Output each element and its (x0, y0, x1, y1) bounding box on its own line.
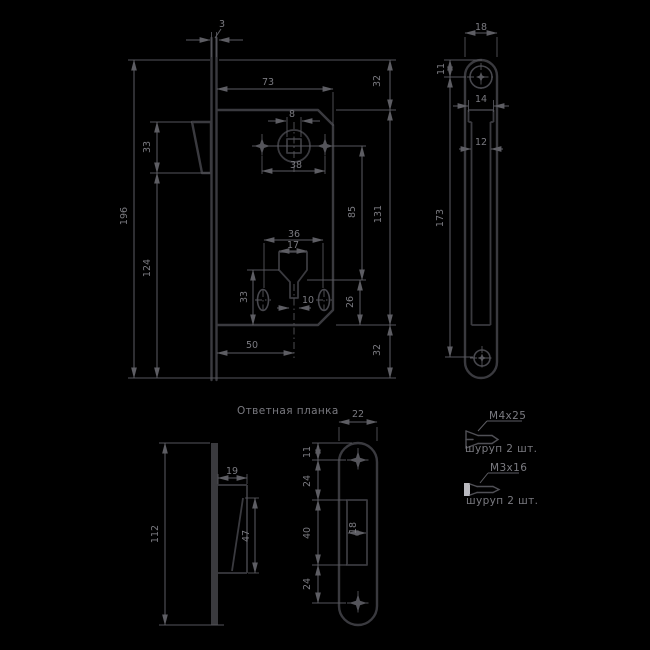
dim-label-screw-spacing: 173 (435, 209, 446, 227)
dim-label-strike-height: 112 (150, 525, 161, 543)
strike-plate-side-view: 112 19 47 (150, 443, 259, 625)
strike-plate-edge (211, 443, 218, 625)
screw2-size-label: M3x16 (490, 462, 527, 474)
strike-plate-title: Ответная планка (237, 405, 339, 417)
dim-label-latch-height: 33 (142, 141, 153, 153)
dim-label-body-side-width: 12 (475, 137, 487, 148)
screw2-qty-label: шуруп 2 шт. (466, 495, 538, 507)
dim-label-strike-slot-width: 18 (348, 522, 359, 534)
technical-drawing-canvas: 3 196 33 124 73 32 8 38 85 131 36 17 33 … (0, 0, 650, 650)
dim-label-strike-top-to-screw: 11 (302, 446, 313, 458)
lock-body-outline (217, 110, 333, 325)
dim-label-faceplate-height: 196 (119, 207, 130, 225)
dim-label-spindle-square: 8 (289, 109, 295, 120)
dim-label-cylinder-to-bottom: 33 (239, 291, 250, 303)
faceplate-side-view: 18 11 14 12 173 (435, 22, 509, 378)
dim-label-backset: 50 (246, 340, 258, 351)
dim-label-faceplate-thickness: 3 (219, 19, 225, 30)
dim-label-strike-screw-to-slot: 24 (302, 475, 313, 487)
screws-legend: M4x25 шуруп 2 шт. M3x16 шуруп 2 шт. (464, 410, 538, 507)
dim-label-slot-width: 10 (302, 295, 314, 306)
cylinder-cutout (279, 252, 307, 298)
screw-m3x16-drawing (464, 473, 519, 496)
dim-label-ovals-to-bottom: 26 (345, 296, 356, 308)
screw1-qty-label: шуруп 2 шт. (465, 443, 537, 455)
dim-label-cylinder-screw-span: 36 (288, 229, 300, 240)
dim-label-body-bottom-offset: 32 (372, 344, 383, 356)
dim-label-hub-to-cylinder: 85 (347, 206, 358, 218)
dim-label-plate-top-to-screw: 11 (436, 63, 447, 75)
lock-front-view: 3 196 33 124 73 32 8 38 85 131 36 17 33 … (119, 19, 396, 380)
dim-label-latch-to-bottom: 124 (142, 259, 153, 277)
screw1-size-label: M4x25 (489, 410, 526, 422)
strike-tongue-box (218, 485, 247, 573)
dim-label-plate-width: 18 (475, 22, 487, 33)
dim-label-cylinder-width: 17 (287, 240, 299, 251)
dim-label-body-width: 73 (262, 77, 274, 88)
dim-label-strike-tongue: 47 (241, 530, 252, 542)
dim-label-body-height: 131 (373, 205, 384, 223)
dim-label-strike-slot-height: 40 (302, 527, 313, 539)
dim-label-body-top-offset: 32 (372, 75, 383, 87)
dim-label-strike-width: 22 (352, 409, 364, 420)
dim-label-handle-screw-span: 38 (290, 160, 302, 171)
dim-label-body-top-width: 14 (475, 94, 487, 105)
dim-label-strike-depth: 19 (226, 466, 238, 477)
strike-plate-front-view: Ответная планка 22 (237, 405, 377, 625)
lock-technical-drawing: 3 196 33 124 73 32 8 38 85 131 36 17 33 … (0, 0, 650, 650)
faceplate-outline (465, 60, 497, 378)
latch-bolt (192, 122, 211, 173)
dimension-lines (450, 33, 509, 357)
dim-label-strike-slot-to-screw: 24 (302, 578, 313, 590)
